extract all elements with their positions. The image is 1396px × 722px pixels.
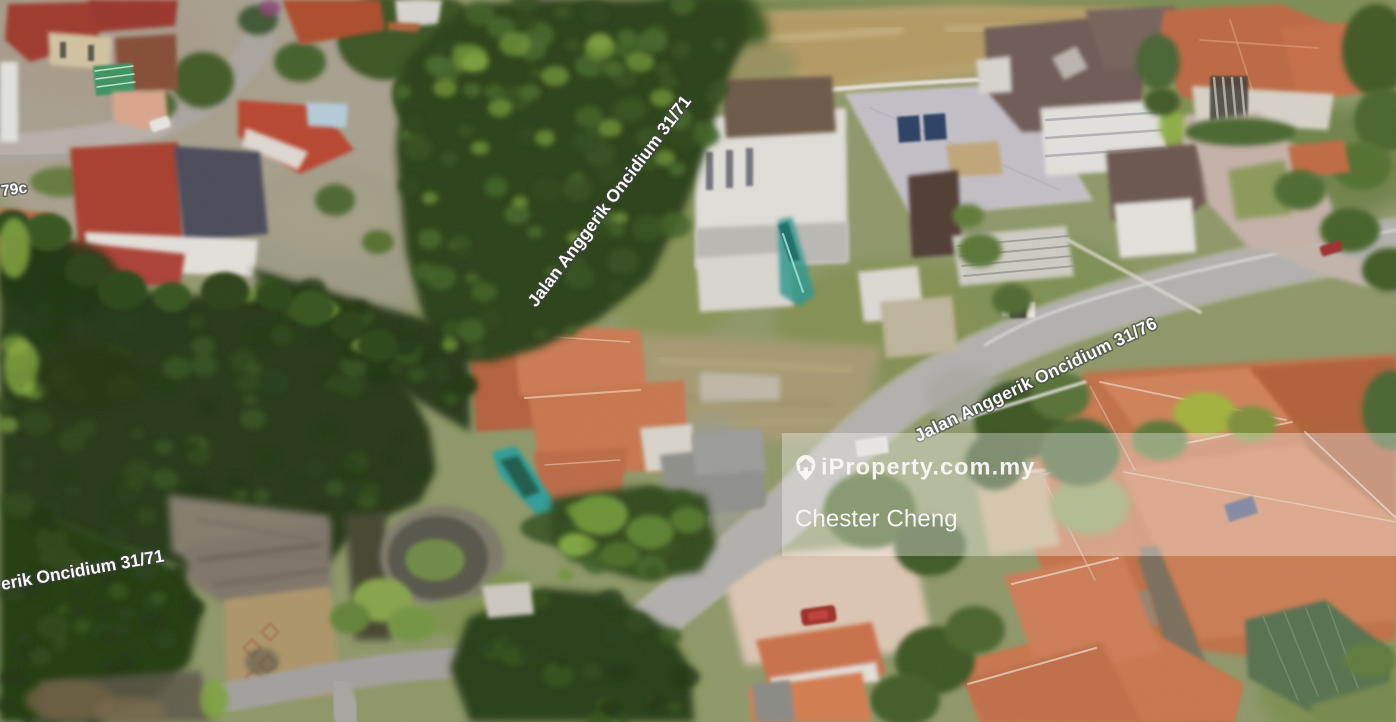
svg-text:iProperty.com.my: iProperty.com.my [821,454,1035,480]
svg-text:79c: 79c [0,179,28,199]
svg-text:Chester Cheng: Chester Cheng [795,506,958,533]
